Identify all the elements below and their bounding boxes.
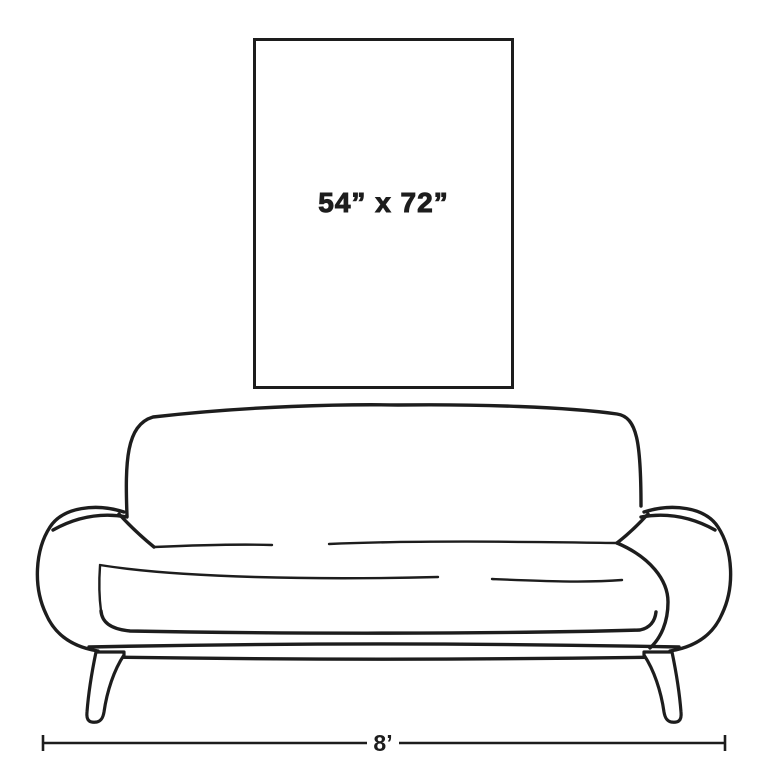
- artwork-dimensions-label: 54” x 72”: [318, 187, 448, 218]
- sofa-right-arm-inner: [617, 514, 648, 543]
- sofa-left-arm-inner: [119, 514, 154, 547]
- sofa-seat-bottom: [101, 611, 656, 633]
- sofa-left-leg: [87, 652, 124, 722]
- sofa-right-arm-roll: [641, 515, 715, 530]
- sofa-left-arm-roll: [53, 515, 127, 530]
- sofa-left-arm-outer: [37, 507, 124, 651]
- size-comparison-diagram: 54” x 72”: [0, 0, 768, 768]
- sofa-right-arm-outer: [644, 507, 731, 651]
- sofa-width-label: 8’: [373, 730, 392, 756]
- diagram-svg: 54” x 72”: [0, 0, 768, 768]
- sofa-seat-crease-top-right: [329, 542, 617, 544]
- width-dimension: 8’: [43, 730, 725, 756]
- sofa-base-rail: [89, 644, 679, 647]
- sofa-base-rail-lower: [104, 657, 664, 659]
- sofa-seat-crease-lower-right: [492, 579, 622, 582]
- sofa-illustration: [37, 405, 730, 722]
- artwork: 54” x 72”: [255, 40, 513, 388]
- sofa-backrest-outline: [126, 405, 641, 516]
- sofa-left-cushion-edge: [99, 566, 101, 611]
- sofa-right-arm-front-sweep: [617, 543, 668, 648]
- sofa-seat-crease-lower-left: [100, 565, 438, 578]
- sofa-right-leg: [644, 652, 681, 722]
- sofa-seat-crease-top-left: [154, 545, 272, 547]
